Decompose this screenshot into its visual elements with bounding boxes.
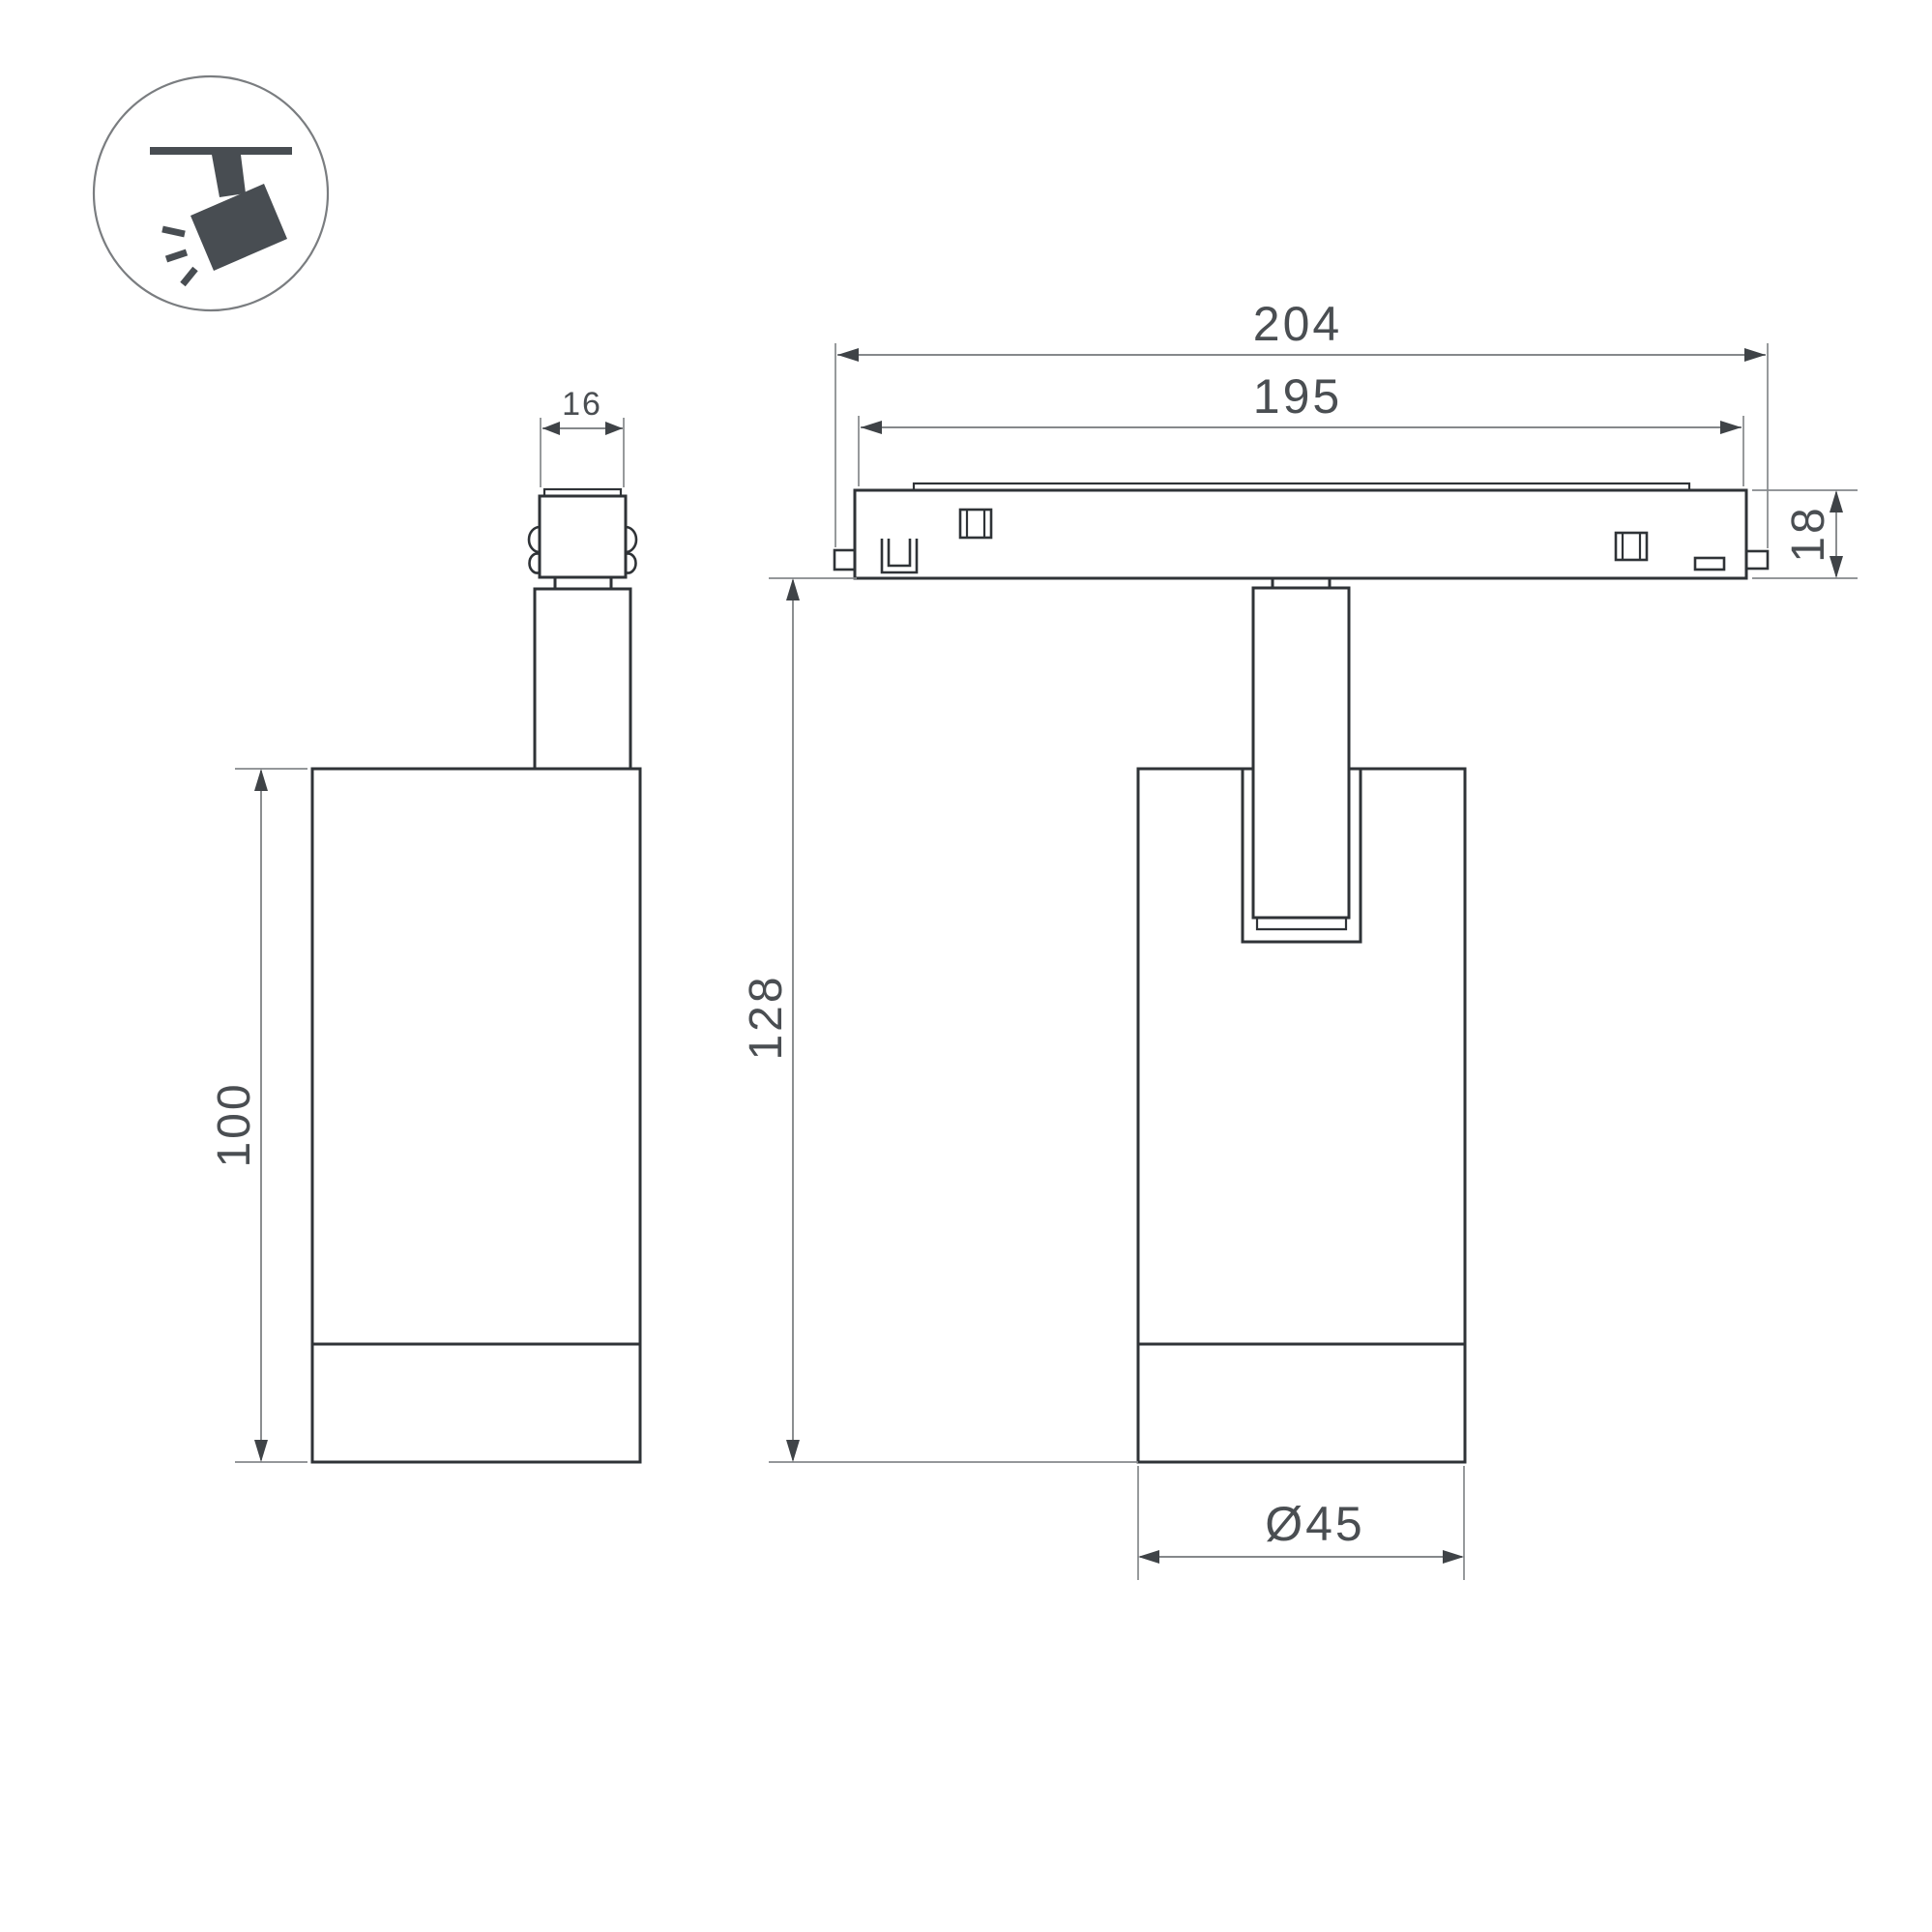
arrowhead	[861, 421, 882, 434]
track-rail-top-strip	[914, 483, 1689, 490]
dim-track-inner-length: 195	[859, 369, 1743, 486]
dimension-drawing-page: 16 100	[0, 0, 1932, 1932]
icon-ceiling-track	[150, 147, 292, 155]
dim-label-overall-height: 128	[741, 974, 792, 1060]
dim-label-track-outer-length: 204	[1253, 297, 1342, 351]
track-rail	[834, 483, 1768, 578]
arrowhead	[1443, 1550, 1464, 1564]
dim-overall-height: 128	[741, 578, 1138, 1462]
adapter-body	[540, 496, 626, 577]
lamp-body-side	[312, 769, 640, 1462]
dim-label-adapter-width: 16	[562, 386, 602, 423]
front-view: 204 195	[741, 297, 1858, 1580]
arrowhead	[786, 1440, 800, 1462]
dim-label-track-inner-length: 195	[1253, 369, 1342, 424]
pivot-stem-side	[535, 589, 630, 769]
track-rail-body	[855, 490, 1746, 578]
arrowhead	[254, 1440, 268, 1462]
arrowhead	[786, 578, 800, 600]
arrowhead	[542, 422, 560, 435]
track-end-tab-right	[1746, 551, 1768, 569]
arrowhead	[605, 422, 623, 435]
arrowhead	[1744, 348, 1766, 362]
track-adapter-side	[529, 489, 636, 589]
icon-light-ray	[162, 229, 185, 234]
dim-adapter-width: 16	[541, 386, 624, 487]
pivot-stem-front	[1253, 588, 1349, 918]
adapter-contact-right	[626, 554, 635, 573]
dim-label-track-height: 18	[1783, 505, 1834, 562]
side-view: 16 100	[209, 386, 640, 1462]
track-spotlight-icon	[94, 76, 328, 310]
dim-label-body-diameter: Ø45	[1265, 1497, 1365, 1551]
adapter-contact-right	[626, 527, 636, 552]
technical-drawing: 16 100	[0, 0, 1932, 1932]
spotlight-front	[1138, 578, 1465, 1462]
adapter-contact-left	[529, 527, 540, 552]
adapter-contact-left	[530, 554, 540, 573]
track-end-tab-left	[834, 550, 855, 570]
dim-body-height: 100	[209, 769, 307, 1462]
dim-body-diameter: Ø45	[1138, 1466, 1464, 1580]
arrowhead	[1138, 1550, 1159, 1564]
lamp-cylinder-side	[312, 769, 640, 1462]
arrowhead	[1720, 421, 1742, 434]
arrowhead	[837, 348, 859, 362]
arrowhead	[254, 769, 268, 791]
icon-circle-border	[94, 76, 328, 310]
dim-label-body-height: 100	[209, 1081, 260, 1167]
